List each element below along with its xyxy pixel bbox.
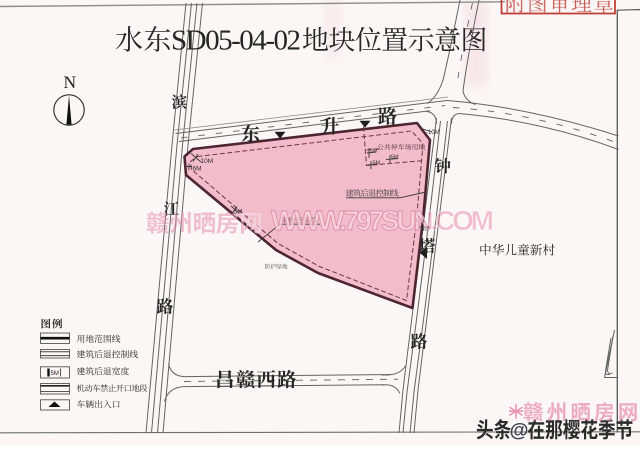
svg-text:SD05-04-02: SD05-04-02 (171, 25, 301, 57)
svg-text:6M: 6M (193, 166, 202, 173)
svg-text:-10M: -10M (426, 130, 440, 136)
svg-text:5M: 5M (391, 155, 399, 161)
svg-text:@: @ (510, 420, 529, 442)
svg-text:5M: 5M (370, 149, 378, 155)
svg-text:10M: 10M (201, 158, 214, 165)
svg-text:5M: 5M (51, 371, 59, 377)
svg-text:5M: 5M (373, 161, 381, 167)
